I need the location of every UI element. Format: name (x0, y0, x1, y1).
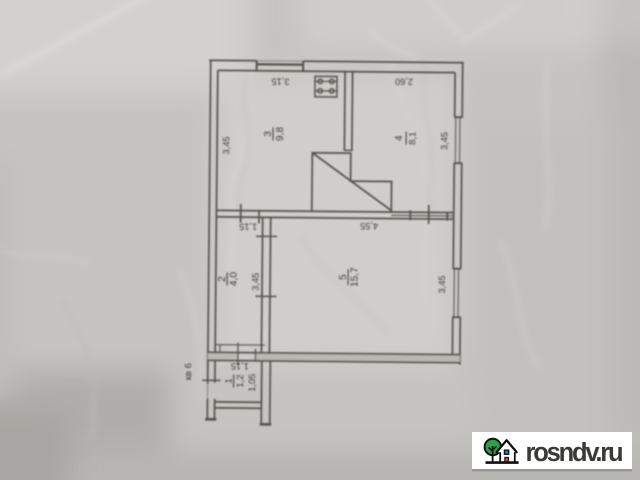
svg-text:3,45: 3,45 (221, 136, 231, 154)
svg-text:15,7: 15,7 (350, 267, 361, 287)
svg-text:3,15: 3,15 (272, 76, 290, 86)
svg-text:1,15: 1,15 (239, 221, 257, 231)
svg-text:8,1: 8,1 (407, 132, 418, 145)
svg-text:rosndv.ru: rosndv.ru (526, 439, 623, 467)
svg-text:4,0: 4,0 (229, 272, 240, 287)
svg-text:5: 5 (338, 274, 349, 280)
svg-text:2,60: 2,60 (395, 76, 413, 86)
svg-text:4,55: 4,55 (360, 221, 378, 231)
svg-text:1,2: 1,2 (235, 374, 246, 387)
svg-text:1: 1 (223, 378, 234, 383)
svg-text:3,45: 3,45 (437, 276, 447, 294)
svg-text:1,05: 1,05 (247, 374, 257, 392)
svg-text:4: 4 (394, 135, 405, 141)
svg-text:3: 3 (263, 131, 274, 137)
svg-text:9,8: 9,8 (275, 126, 286, 141)
svg-text:2: 2 (217, 276, 228, 282)
svg-text:1,15: 1,15 (231, 361, 249, 371)
svg-text:3,45: 3,45 (251, 273, 261, 291)
svg-text:3,45: 3,45 (439, 132, 449, 150)
svg-text:кв 6: кв 6 (183, 363, 194, 380)
